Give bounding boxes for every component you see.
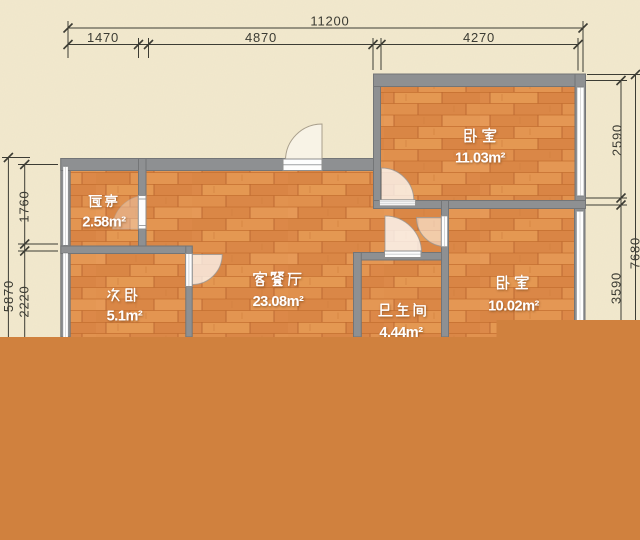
svg-text:4870: 4870 (245, 30, 277, 45)
svg-text:1760: 1760 (17, 190, 32, 222)
svg-text:7680: 7680 (628, 237, 640, 269)
svg-text:2220: 2220 (17, 285, 32, 317)
svg-text:10.02m²: 10.02m² (488, 299, 539, 315)
svg-text:3590: 3590 (609, 272, 624, 304)
svg-text:23.08m²: 23.08m² (253, 294, 304, 310)
svg-text:5.1m²: 5.1m² (107, 309, 143, 325)
svg-text:1470: 1470 (87, 30, 119, 45)
svg-text:2590: 2590 (610, 124, 625, 156)
svg-text:4270: 4270 (463, 30, 495, 45)
svg-text:11200: 11200 (310, 14, 349, 29)
svg-text:11.03m²: 11.03m² (455, 151, 506, 167)
svg-text:5870: 5870 (1, 280, 16, 312)
svg-text:2.58m²: 2.58m² (82, 215, 126, 231)
